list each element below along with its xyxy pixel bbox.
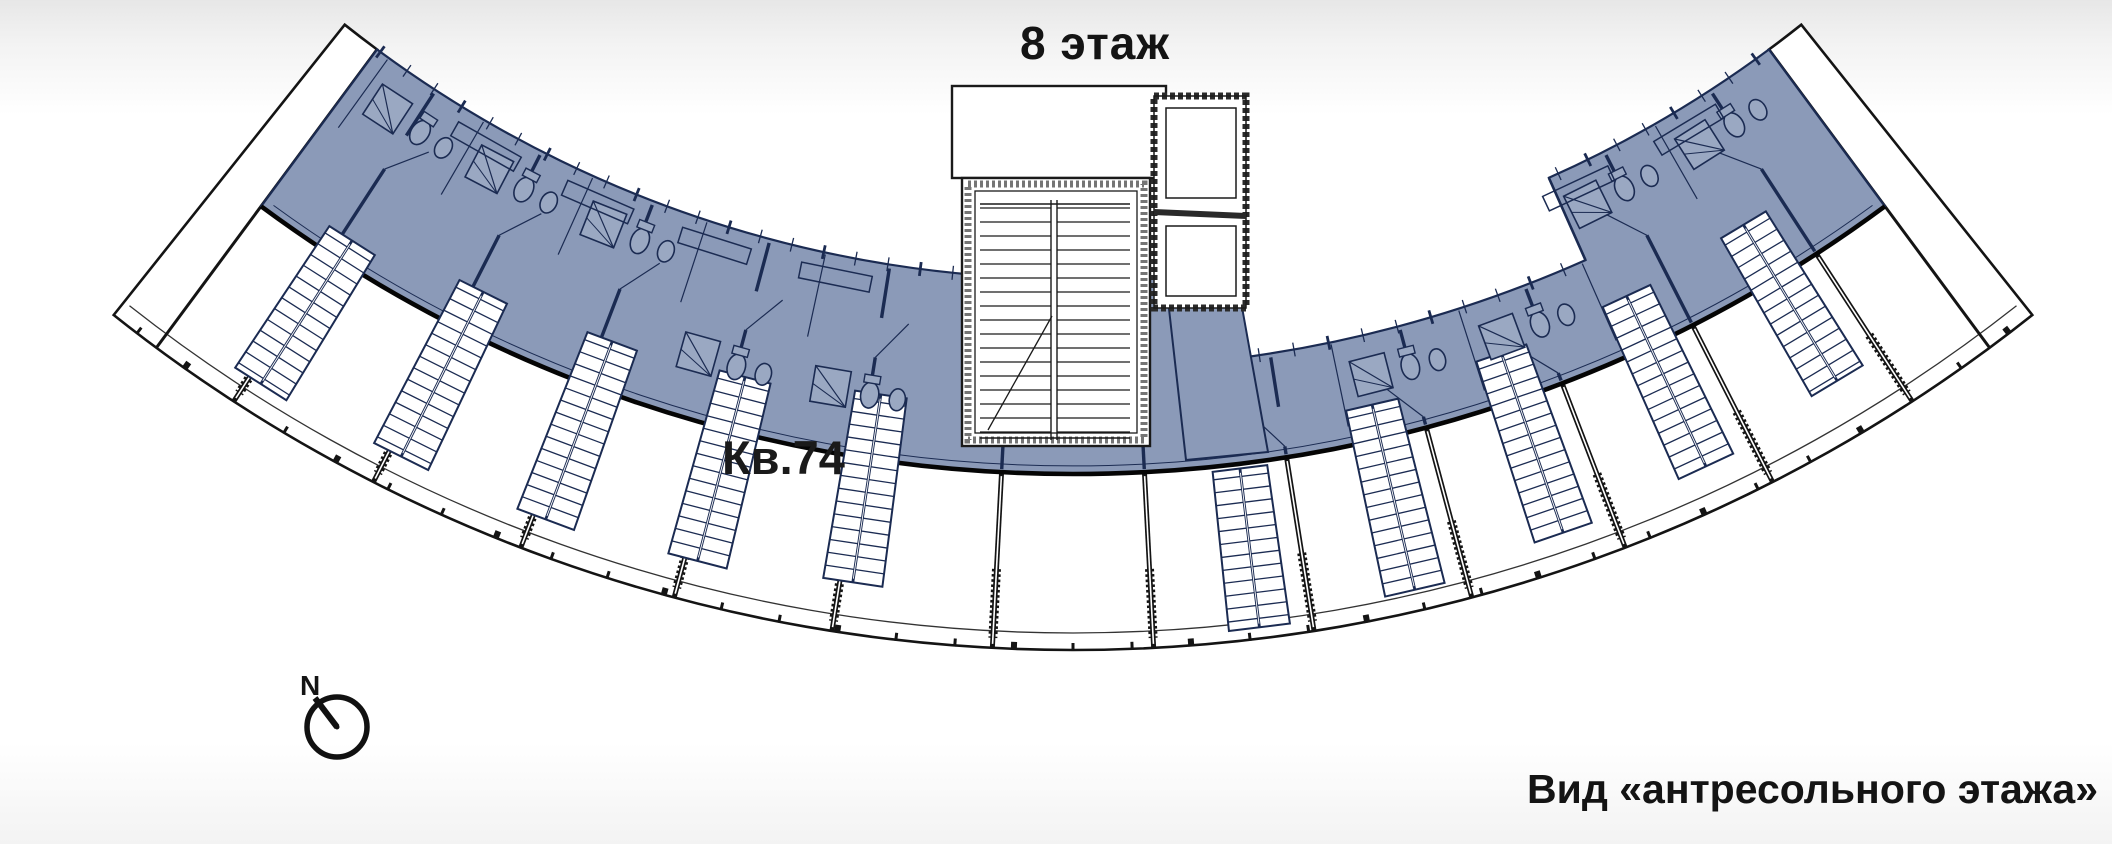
stair-core	[952, 86, 1268, 460]
floor-plan-drawing	[0, 0, 2112, 844]
core-vestibule	[952, 86, 1166, 178]
compass-icon	[307, 697, 367, 757]
floor-plan: 8 этаж Кв.74 Вид «антресольного этажа» N	[0, 0, 2112, 844]
core-corridor	[1168, 296, 1268, 460]
